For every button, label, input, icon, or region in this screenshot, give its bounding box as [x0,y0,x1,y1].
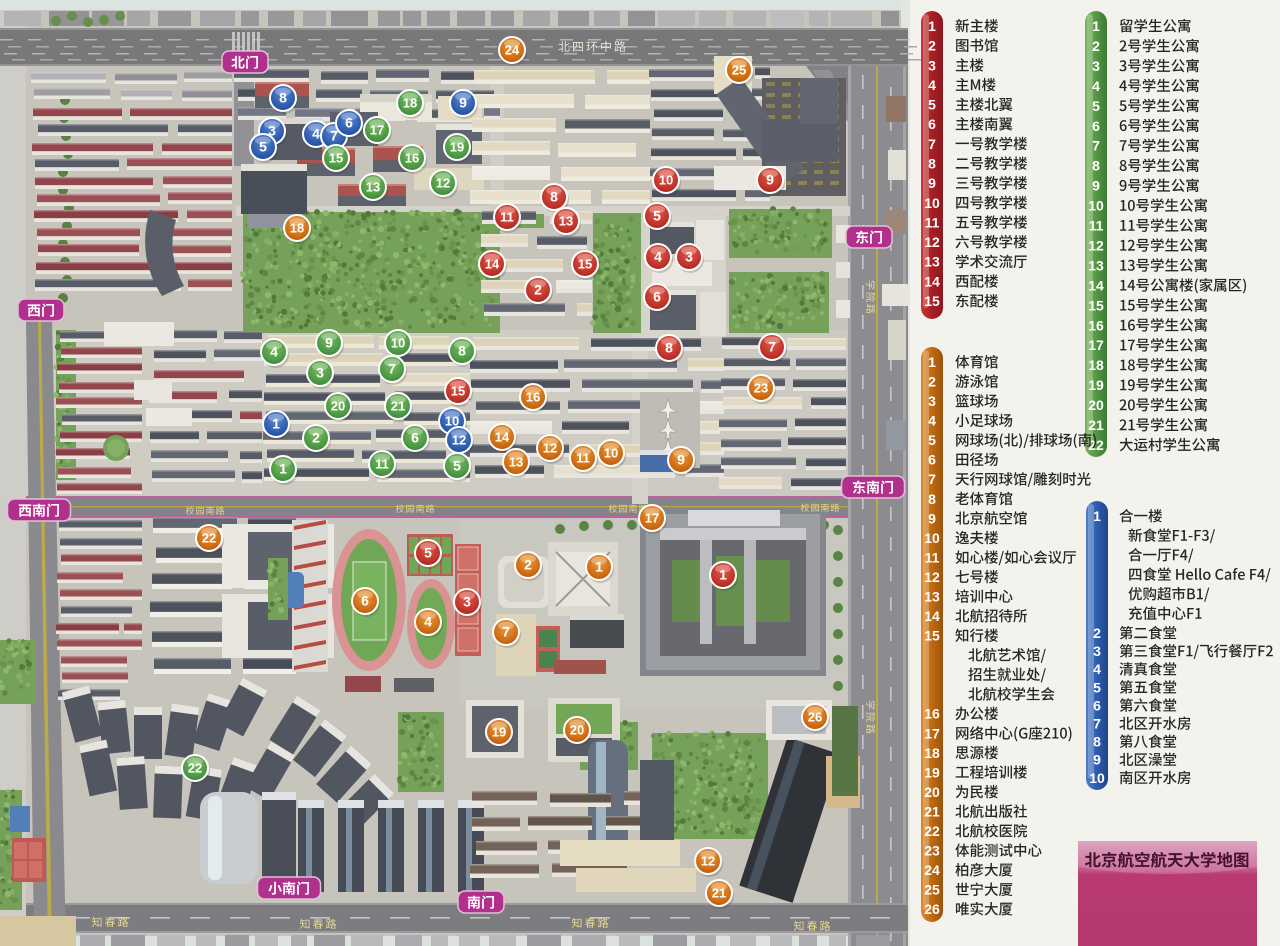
svg-text:9: 9 [459,95,467,111]
svg-text:12: 12 [1088,237,1104,253]
svg-text:9: 9 [677,452,685,468]
svg-text:4: 4 [270,344,278,360]
svg-text:3: 3 [928,393,936,409]
svg-text:26: 26 [808,710,822,725]
svg-text:8: 8 [928,491,936,507]
svg-text:2: 2 [1092,38,1100,54]
svg-text:14: 14 [485,257,500,272]
svg-text:22: 22 [188,761,202,776]
svg-text:6: 6 [1092,118,1100,134]
svg-text:17: 17 [645,511,659,526]
svg-text:6: 6 [345,115,353,131]
svg-text:14: 14 [1088,277,1104,293]
svg-text:9: 9 [1092,178,1100,194]
svg-text:7: 7 [502,624,510,640]
svg-text:16: 16 [526,390,540,405]
svg-text:16: 16 [405,151,419,166]
svg-text:1: 1 [279,461,287,477]
svg-text:10: 10 [924,530,940,546]
svg-text:20: 20 [924,784,940,800]
svg-text:17: 17 [1088,337,1104,353]
svg-text:14: 14 [495,430,510,445]
svg-text:7: 7 [768,339,776,355]
svg-text:13: 13 [924,254,940,270]
svg-text:16: 16 [1088,317,1104,333]
svg-text:12: 12 [452,433,466,448]
svg-text:9: 9 [928,175,936,191]
svg-text:2: 2 [928,38,936,54]
svg-text:9: 9 [766,172,774,188]
svg-text:20: 20 [1088,397,1104,413]
svg-text:5: 5 [453,458,461,474]
svg-text:11: 11 [925,549,940,565]
svg-text:10: 10 [391,336,405,351]
svg-text:11: 11 [500,210,514,225]
svg-text:17: 17 [924,725,940,741]
svg-text:12: 12 [436,176,450,191]
svg-text:23: 23 [754,381,768,396]
svg-text:10: 10 [659,173,673,188]
svg-text:3: 3 [1092,58,1100,74]
svg-text:7: 7 [1092,138,1100,154]
svg-text:11: 11 [1089,218,1104,234]
svg-text:5: 5 [928,432,936,448]
svg-text:7: 7 [928,471,936,487]
svg-text:9: 9 [325,335,333,351]
svg-text:15: 15 [578,257,592,272]
svg-text:20: 20 [331,399,345,414]
svg-text:5: 5 [653,208,661,224]
svg-text:18: 18 [924,745,940,761]
svg-text:6: 6 [361,593,369,609]
svg-text:18: 18 [290,221,304,236]
svg-text:21: 21 [1088,417,1104,433]
svg-text:7: 7 [388,361,396,377]
svg-text:6: 6 [1093,697,1101,713]
svg-text:15: 15 [329,151,343,166]
svg-text:15: 15 [924,293,940,309]
svg-text:1: 1 [928,18,936,34]
svg-text:1: 1 [595,559,603,575]
svg-text:22: 22 [202,531,216,546]
svg-text:19: 19 [924,764,940,780]
svg-text:18: 18 [403,96,417,111]
svg-text:25: 25 [924,882,940,898]
svg-text:10: 10 [924,195,940,211]
svg-text:7: 7 [1093,716,1101,732]
svg-text:25: 25 [732,63,746,78]
svg-text:6: 6 [928,116,936,132]
svg-text:2: 2 [524,557,532,573]
svg-text:14: 14 [924,273,940,289]
svg-text:8: 8 [279,90,287,106]
svg-text:6: 6 [928,452,936,468]
svg-text:22: 22 [924,823,940,839]
svg-text:15: 15 [1088,297,1104,313]
svg-text:7: 7 [928,136,936,152]
svg-text:12: 12 [924,234,940,250]
svg-text:15: 15 [924,628,940,644]
svg-text:18: 18 [1088,357,1104,373]
svg-text:3: 3 [1093,643,1101,659]
svg-text:20: 20 [570,723,584,738]
svg-text:4: 4 [928,413,936,429]
svg-text:19: 19 [450,140,464,155]
svg-text:2: 2 [928,374,936,390]
svg-text:9: 9 [928,510,936,526]
svg-text:1: 1 [1092,18,1100,34]
svg-text:13: 13 [559,214,573,229]
svg-text:11: 11 [375,457,389,472]
svg-text:2: 2 [1093,625,1101,641]
svg-text:5: 5 [259,139,267,155]
svg-text:24: 24 [505,43,520,58]
svg-text:13: 13 [924,588,940,604]
svg-text:5: 5 [928,97,936,113]
svg-text:12: 12 [924,569,940,585]
svg-text:10: 10 [1088,198,1104,214]
svg-text:3: 3 [685,249,693,265]
svg-text:26: 26 [924,901,940,917]
svg-text:5: 5 [424,545,432,561]
svg-text:8: 8 [550,189,558,205]
svg-text:11: 11 [925,214,940,230]
svg-text:3: 3 [928,57,936,73]
svg-text:1: 1 [719,567,727,583]
svg-text:8: 8 [458,343,466,359]
svg-text:21: 21 [924,803,940,819]
svg-text:16: 16 [924,706,940,722]
svg-text:4: 4 [312,126,320,142]
svg-text:19: 19 [1088,377,1104,393]
svg-text:6: 6 [653,289,661,305]
svg-text:2: 2 [534,282,542,298]
svg-text:4: 4 [424,614,432,630]
svg-text:1: 1 [928,354,936,370]
svg-text:13: 13 [366,180,380,195]
svg-text:10: 10 [604,446,618,461]
svg-text:5: 5 [1093,679,1101,695]
svg-text:19: 19 [492,725,506,740]
svg-text:2: 2 [312,430,320,446]
svg-text:15: 15 [451,384,465,399]
svg-text:1: 1 [272,416,280,432]
svg-text:8: 8 [928,155,936,171]
svg-text:4: 4 [928,77,936,93]
svg-text:3: 3 [463,594,471,610]
svg-text:6: 6 [411,430,419,446]
svg-text:8: 8 [1092,158,1100,174]
svg-text:11: 11 [576,451,590,466]
svg-text:23: 23 [924,843,940,859]
svg-text:3: 3 [316,365,324,381]
svg-text:4: 4 [654,249,662,265]
svg-text:13: 13 [509,455,523,470]
svg-text:13: 13 [1088,257,1104,273]
svg-text:12: 12 [543,441,557,456]
svg-text:17: 17 [370,123,384,138]
svg-text:9: 9 [1093,752,1101,768]
svg-text:4: 4 [1093,661,1101,677]
svg-text:24: 24 [924,862,940,878]
svg-text:8: 8 [1093,734,1101,750]
svg-text:21: 21 [391,399,405,414]
svg-text:1: 1 [1093,508,1101,524]
svg-text:10: 10 [1089,770,1105,786]
svg-text:12: 12 [701,854,715,869]
svg-text:4: 4 [1092,78,1100,94]
svg-text:5: 5 [1092,98,1100,114]
svg-text:14: 14 [924,608,940,624]
svg-text:21: 21 [712,886,726,901]
svg-text:8: 8 [665,340,673,356]
